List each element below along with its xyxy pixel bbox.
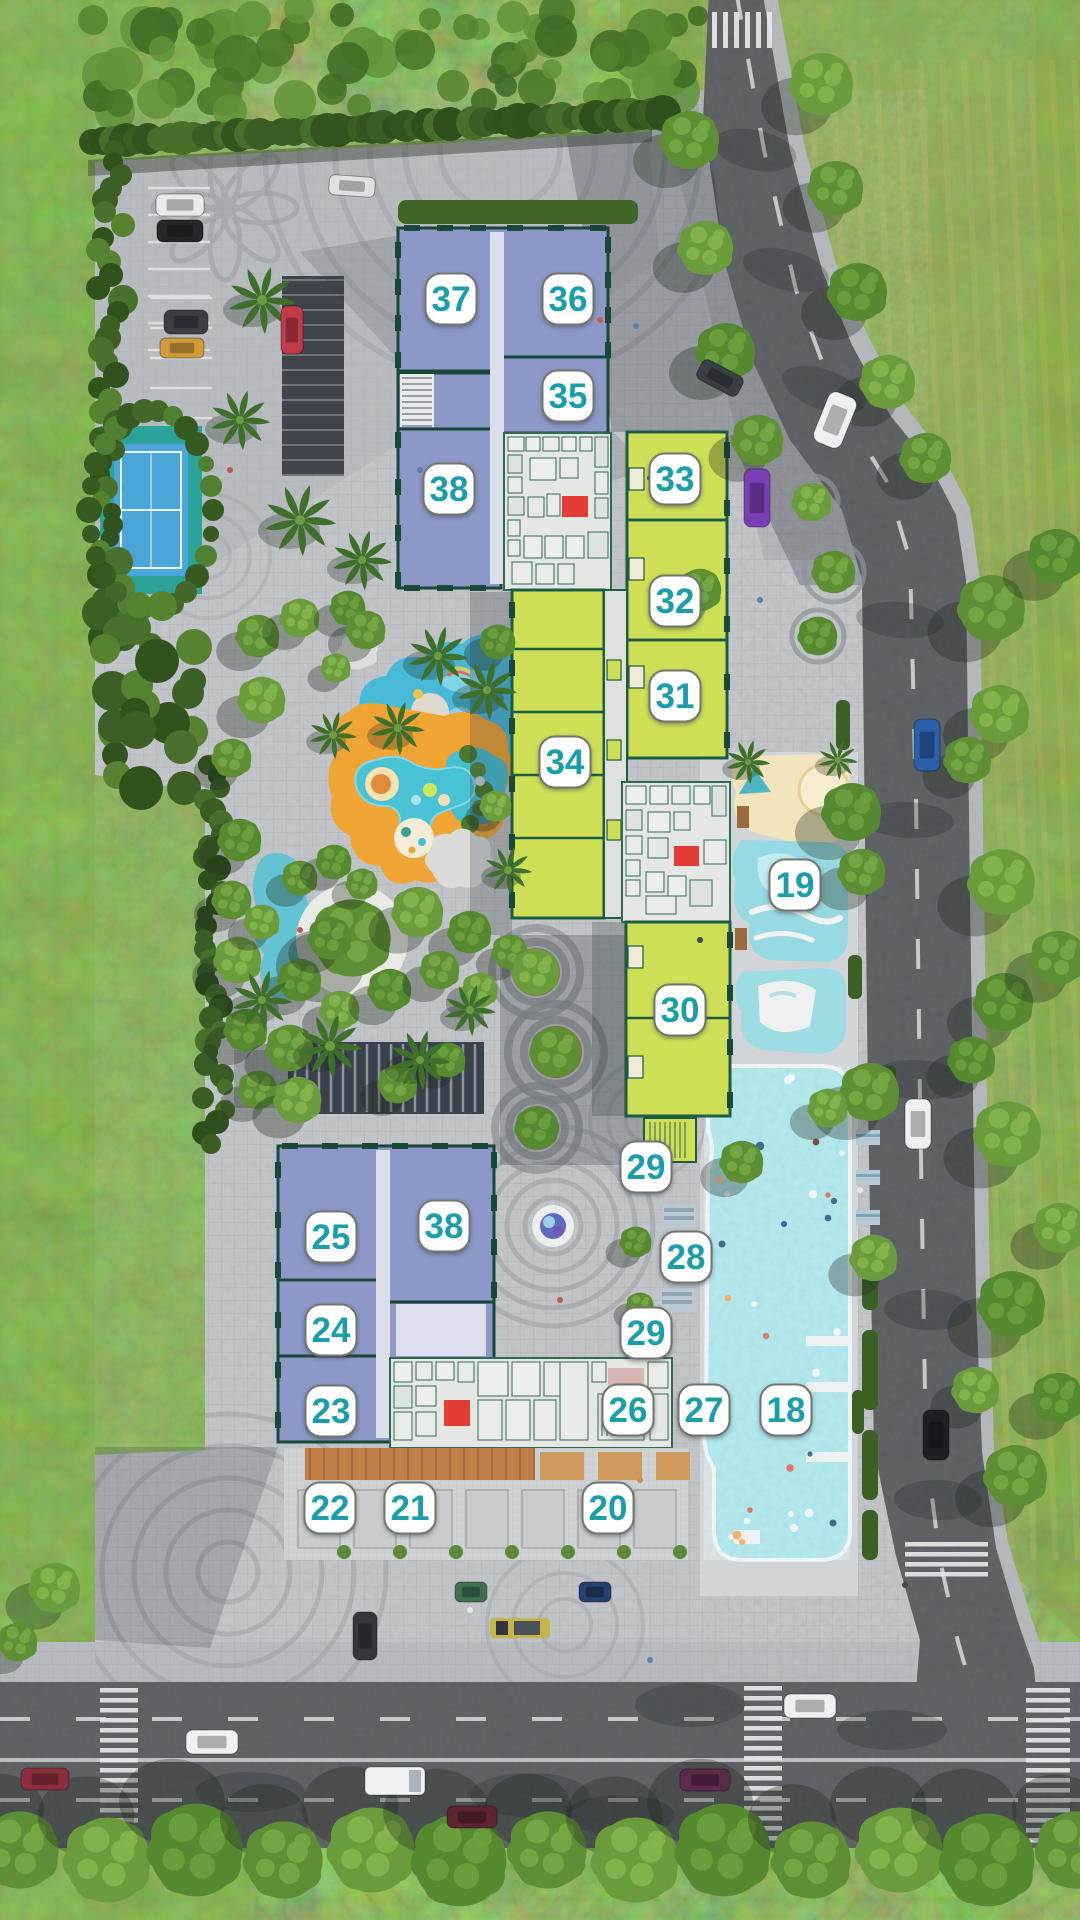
svg-text:27: 27 [685, 1391, 724, 1430]
svg-text:31: 31 [656, 677, 695, 716]
svg-text:20: 20 [589, 1489, 628, 1528]
svg-text:35: 35 [549, 377, 588, 416]
svg-text:38: 38 [430, 470, 469, 509]
svg-text:19: 19 [776, 866, 815, 905]
svg-text:24: 24 [312, 1311, 351, 1350]
svg-text:37: 37 [432, 280, 471, 319]
svg-text:36: 36 [549, 280, 588, 319]
svg-text:33: 33 [656, 460, 695, 499]
svg-text:25: 25 [312, 1218, 351, 1257]
svg-text:21: 21 [391, 1489, 430, 1528]
svg-text:26: 26 [609, 1391, 648, 1430]
svg-text:18: 18 [767, 1391, 806, 1430]
svg-text:32: 32 [656, 582, 695, 621]
svg-text:29: 29 [627, 1314, 666, 1353]
svg-text:29: 29 [627, 1148, 666, 1187]
svg-text:38: 38 [425, 1207, 464, 1246]
svg-text:28: 28 [667, 1238, 706, 1277]
svg-text:34: 34 [546, 743, 585, 782]
svg-text:30: 30 [661, 991, 700, 1030]
svg-text:22: 22 [311, 1489, 350, 1528]
svg-text:23: 23 [312, 1392, 351, 1431]
